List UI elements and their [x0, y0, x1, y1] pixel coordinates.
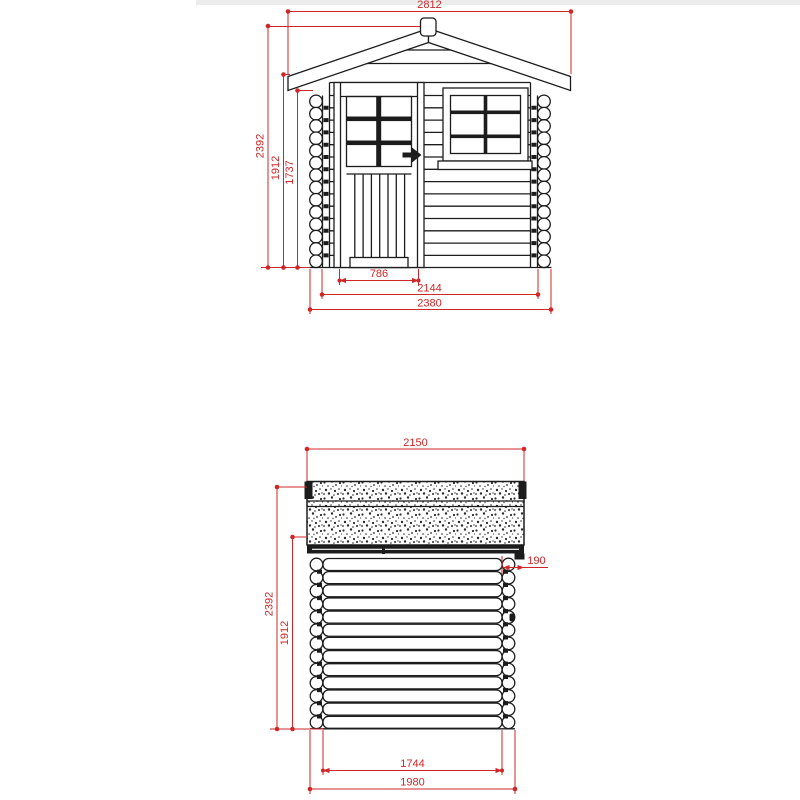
dim-side-total-height: 2392: [264, 592, 276, 616]
roof-board-left: [288, 29, 429, 91]
window-vertical-bar: [484, 96, 488, 154]
dim-front-eaves-height: 1912: [270, 156, 282, 180]
wall-knot-mark: [510, 614, 515, 622]
window-horizontal-bar-1: [451, 111, 521, 115]
window-horizontal-bar-2: [451, 135, 521, 139]
front-right-log-ends: [538, 95, 551, 268]
dim-front-roof-width: 2812: [417, 0, 441, 11]
roof-edge-tab-left: [305, 482, 313, 500]
dim-front-wall-top-height: 1737: [284, 160, 296, 184]
dim-side-wall-depth: 1744: [400, 758, 424, 770]
dim-side-roof-overhang: 190: [527, 555, 545, 567]
roof-edge-tab-right: [519, 482, 527, 500]
front-elevation: 2812 2392 1912 1737 786 2144: [255, 0, 574, 314]
door-glazing-vertical-bar: [376, 97, 381, 167]
door-glazing-horizontal-bar-2: [347, 141, 412, 146]
side-wall-logs: [323, 559, 502, 729]
dim-side-log-end-depth: 1980: [400, 777, 424, 789]
dim-front-wall-width: 2144: [417, 283, 441, 295]
door: [334, 83, 424, 268]
eave-right-step: [515, 554, 525, 560]
drawing-canvas: 2812 2392 1912 1737 786 2144: [0, 0, 800, 800]
roof-apex-block: [421, 18, 437, 36]
dim-front-log-end-width: 2380: [417, 298, 441, 310]
dim-front-door-width: 786: [370, 268, 388, 280]
shed-technical-drawing: 2812 2392 1912 1737 786 2144: [0, 0, 800, 800]
window-sill: [438, 161, 532, 170]
dim-front-total-height: 2392: [255, 134, 267, 158]
door-glazing-horizontal-bar-1: [347, 117, 412, 122]
roof-board-right: [429, 29, 571, 91]
side-roof-felt: [307, 482, 524, 546]
dim-side-roof-depth: 2150: [403, 437, 427, 449]
window: [438, 88, 532, 170]
dim-side-wall-height: 1912: [279, 621, 291, 645]
door-bottom-rail: [350, 258, 408, 268]
eave-center-tick: [382, 545, 385, 555]
side-elevation: 2150 2392 1912 190 1744 1980: [264, 437, 549, 794]
front-left-log-ends: [310, 95, 323, 268]
